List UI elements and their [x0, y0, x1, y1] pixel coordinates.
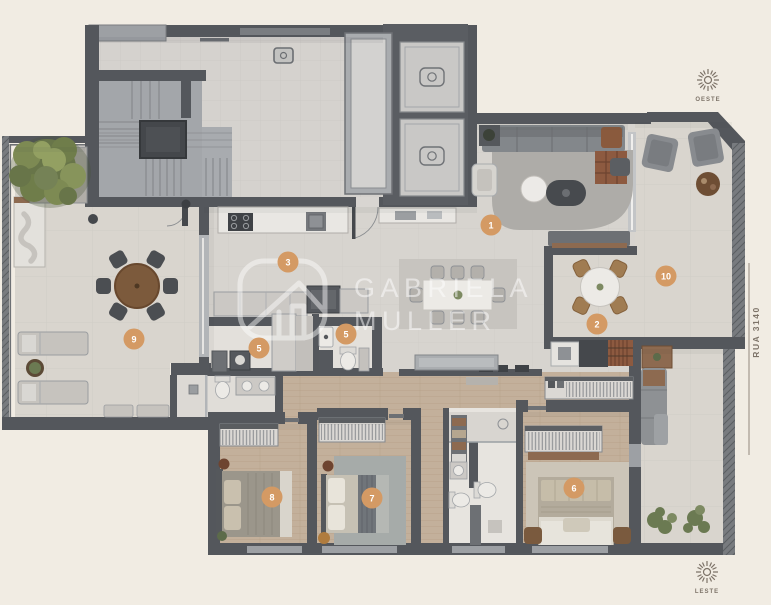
svg-text:RUA 3140: RUA 3140: [751, 306, 761, 357]
svg-text:9: 9: [131, 335, 136, 345]
svg-text:5: 5: [256, 344, 261, 354]
svg-text:5: 5: [343, 330, 348, 340]
svg-text:GABRIELA: GABRIELA: [354, 273, 533, 303]
svg-text:7: 7: [369, 494, 374, 504]
svg-text:10: 10: [661, 272, 671, 282]
svg-text:6: 6: [571, 484, 576, 494]
svg-text:3: 3: [285, 258, 290, 268]
svg-text:OESTE: OESTE: [695, 97, 720, 103]
svg-text:1: 1: [488, 221, 493, 231]
svg-text:MULLER: MULLER: [354, 306, 497, 336]
svg-text:LESTE: LESTE: [695, 589, 719, 595]
svg-text:8: 8: [269, 493, 274, 503]
svg-text:2: 2: [594, 320, 599, 330]
